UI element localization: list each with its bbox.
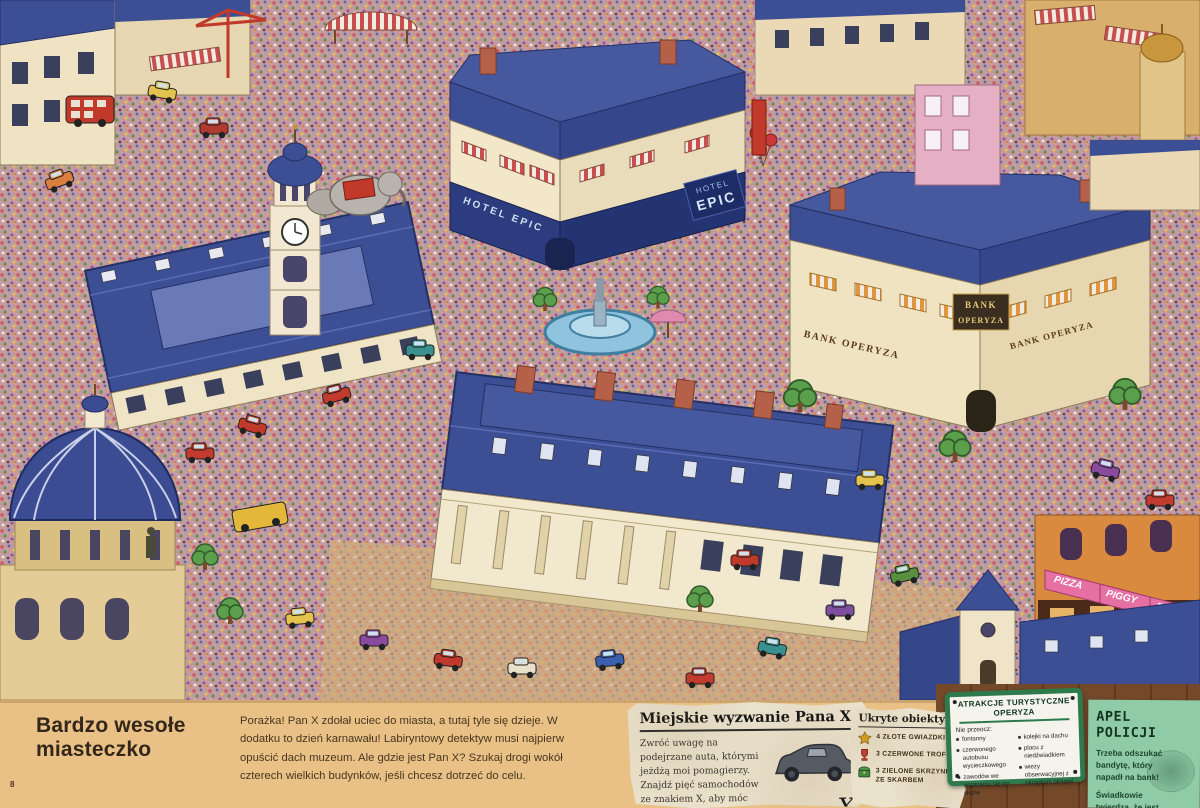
- screw-icon: [1073, 770, 1077, 774]
- attractions-sign: ATRAKCJE TURYSTYCZNE OPERYZA Nie przeocz…: [944, 688, 1085, 787]
- bullet-icon: [1017, 736, 1020, 739]
- x-mark: X: [837, 793, 854, 808]
- police-stamp-icon: [1147, 750, 1195, 792]
- page-number: 8: [10, 780, 14, 789]
- green-chest-icon: [858, 765, 871, 778]
- page-title: Bardzo wesołe miasteczko: [36, 714, 226, 762]
- footer-band: 8 Bardzo wesołe miasteczko Porażka! Pan …: [0, 700, 1200, 808]
- challenge-body: Zwróć uwagę na podejrzane auta, którymi …: [640, 736, 763, 808]
- city-illustration: HOTEL EPIC HOTEL EPIC: [0, 0, 1200, 700]
- police-note: APEL POLICJI Trzeba odszukać bandytę, kt…: [1088, 700, 1200, 808]
- attraction-item: czerwonego autobusu wycieczkowego: [956, 745, 1013, 771]
- police-title: APEL POLICJI: [1096, 709, 1192, 742]
- red-bus: [66, 96, 114, 127]
- bullet-icon: [956, 749, 959, 752]
- attraction-item: placu z niedźwiadkiem: [1018, 743, 1075, 761]
- hidden-object-item: 3 czerwone trofea: [858, 749, 958, 762]
- bullet-icon: [956, 738, 959, 741]
- bank-corner-sign: BANK OPERYZA: [953, 294, 1009, 330]
- challenge-title: Miejskie wyzwanie Pana X: [640, 708, 858, 732]
- attractions-col1: fontanny czerwonego autobusu wycieczkowe…: [956, 734, 1015, 801]
- book-spread: HOTEL EPIC HOTEL EPIC: [0, 0, 1200, 808]
- intro-text: Porażka! Pan X zdołał uciec do miasta, a…: [240, 712, 570, 785]
- svg-text:OPERYZA: OPERYZA: [958, 316, 1004, 325]
- attraction-item: zawodów we wspinaniu się po słupie: [957, 772, 1014, 798]
- gold-star-icon: [858, 731, 871, 744]
- attraction-item: fontanny: [956, 734, 1013, 744]
- svg-text:BANK: BANK: [965, 300, 997, 310]
- hidden-objects-list: 4 złote gwiazdki 3 czerwone trofea: [858, 732, 959, 786]
- attraction-item: kolejki na dachu: [1017, 732, 1074, 742]
- bank-operyza-building: BANK OPERYZA BANK OPERYZA BANK OPERYZA: [790, 172, 1150, 432]
- suspect-car-illustration: X: [770, 735, 859, 808]
- screw-icon: [1071, 696, 1075, 700]
- bullet-icon: [1019, 766, 1022, 769]
- attractions-col2: kolejki na dachu placu z niedźwiadkiem w…: [1017, 732, 1076, 799]
- hidden-object-item: 3 zielone skrzynki ze skarbem: [858, 766, 958, 786]
- suspect-car-icon: [770, 735, 859, 788]
- hidden-object-item: 4 złote gwiazdki: [858, 732, 958, 745]
- bullet-icon: [1018, 747, 1021, 750]
- screw-icon: [953, 700, 957, 704]
- hidden-objects-title: Ukryte obiekty: [858, 712, 958, 728]
- attraction-item: wieży obserwacyjnej z okrągłymi oknami: [1018, 762, 1075, 788]
- police-line2: Świadkowie twierdzą, że jest uzbrojony.: [1096, 789, 1176, 808]
- red-trophy-icon: [858, 748, 871, 761]
- challenge-panel: Miejskie wyzwanie Pana X Zwróć uwagę na …: [627, 701, 870, 808]
